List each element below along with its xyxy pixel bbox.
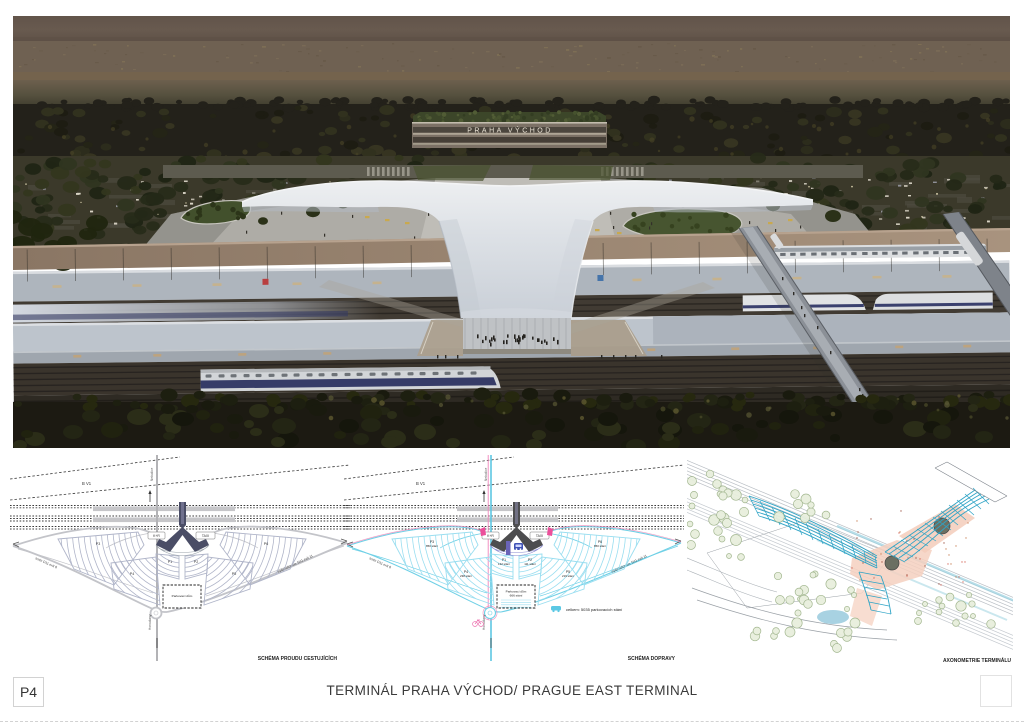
- svg-text:Horoušany: Horoušany: [148, 614, 152, 630]
- svg-text:B V1: B V1: [416, 481, 426, 486]
- svg-text:122 stání: 122 stání: [498, 562, 510, 566]
- svg-text:P6: P6: [264, 542, 268, 546]
- svg-text:219 stání: 219 stání: [562, 574, 574, 578]
- svg-text:666 stání: 666 stání: [510, 594, 523, 598]
- svg-text:SCHÉMA DOPRAVY: SCHÉMA DOPRAVY: [628, 654, 676, 662]
- svg-text:SCHÉMA PROUDU CESTUJÍCÍCH: SCHÉMA PROUDU CESTUJÍCÍCH: [258, 654, 338, 662]
- svg-text:B V1: B V1: [82, 481, 92, 486]
- svg-text:111 stání: 111 stání: [524, 562, 536, 566]
- svg-text:P1: P1: [168, 560, 172, 564]
- svg-text:TAXI: TAXI: [536, 534, 543, 538]
- svg-text:celkem: 5035 parkovacích stání: celkem: 5035 parkovacích stání: [566, 607, 623, 612]
- svg-text:P2: P2: [194, 560, 198, 564]
- svg-text:Nebušice: Nebušice: [484, 467, 488, 481]
- svg-text:K+R: K+R: [487, 534, 494, 538]
- svg-text:AXONOMETRIE TERMINÁLU: AXONOMETRIE TERMINÁLU: [943, 657, 1011, 664]
- svg-text:K+R: K+R: [153, 534, 160, 538]
- svg-text:850 stání: 850 stání: [426, 544, 438, 548]
- svg-text:238 stání: 238 stání: [460, 574, 472, 578]
- svg-text:P3: P3: [96, 542, 100, 546]
- svg-text:TAXI: TAXI: [202, 534, 209, 538]
- svg-text:P5: P5: [232, 572, 236, 576]
- svg-text:Nebušice: Nebušice: [150, 467, 154, 481]
- svg-text:P4: P4: [130, 572, 134, 576]
- svg-text:PRAHA VÝCHOD: PRAHA VÝCHOD: [467, 126, 553, 135]
- svg-text:Parkovací dům: Parkovací dům: [172, 594, 193, 598]
- svg-text:850 stání: 850 stání: [594, 544, 606, 548]
